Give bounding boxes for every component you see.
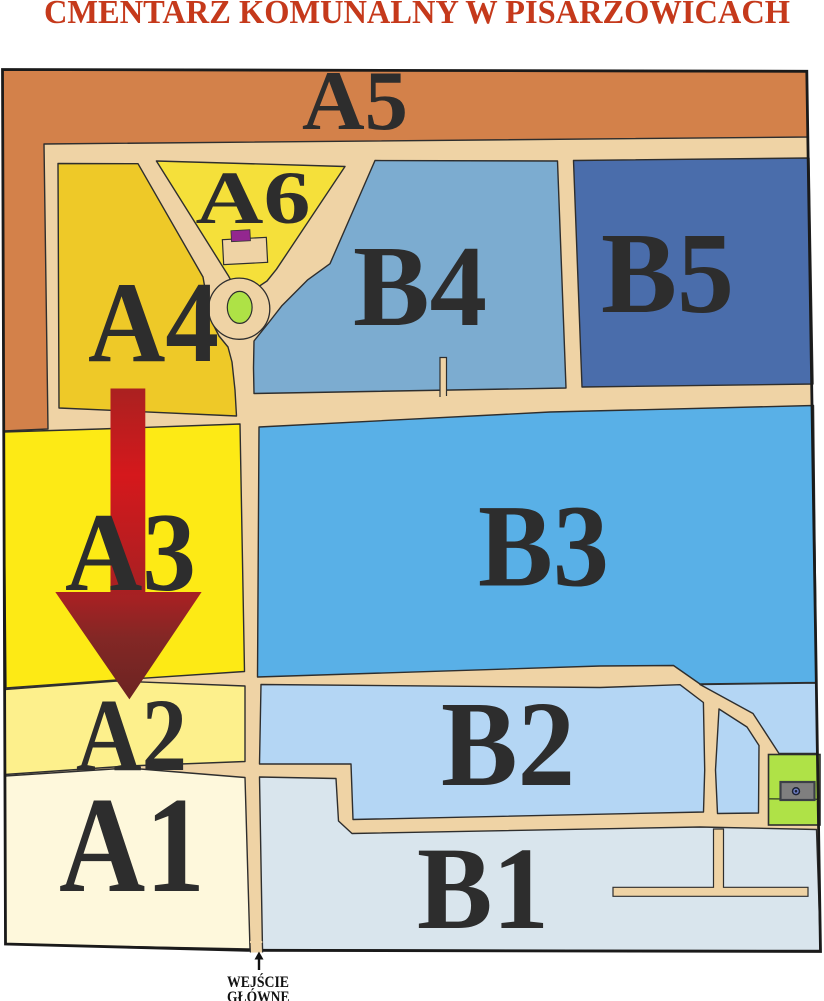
svg-text:A6: A6 [196, 157, 311, 240]
svg-text:A4: A4 [88, 259, 219, 387]
svg-text:CMENTARZ KOMUNALNY W PISARZOWI: CMENTARZ KOMUNALNY W PISARZOWICACH [44, 0, 790, 31]
svg-text:B2: B2 [441, 677, 575, 812]
svg-text:B3: B3 [478, 481, 609, 612]
svg-text:B4: B4 [353, 223, 487, 350]
svg-text:A3: A3 [65, 491, 196, 615]
svg-text:B5: B5 [601, 210, 734, 338]
svg-text:B1: B1 [417, 823, 549, 954]
svg-text:A1: A1 [59, 769, 205, 921]
svg-text:GŁÓWNE: GŁÓWNE [227, 987, 290, 1001]
svg-text:A5: A5 [302, 55, 408, 148]
